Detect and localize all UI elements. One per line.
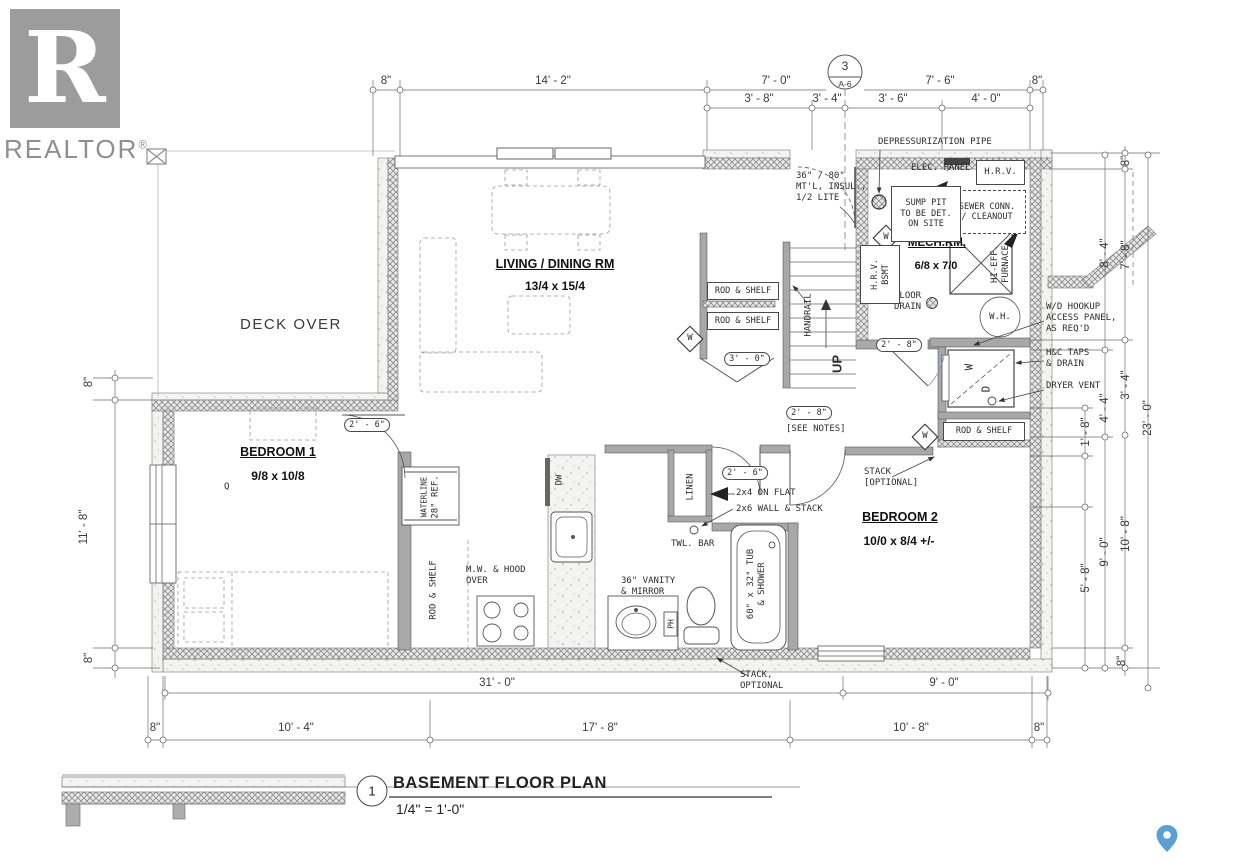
bedroom1-window bbox=[150, 465, 176, 583]
door-tag-mech: 2' - 8" bbox=[876, 338, 922, 352]
tub-shower-label: 60" x 32" TUB& SHOWER bbox=[746, 549, 768, 619]
dim-top-14-2: 14' - 2" bbox=[535, 75, 571, 87]
floor-drain-symbol bbox=[927, 298, 938, 309]
door-tag-bedroom1: 2' - 6" bbox=[344, 418, 390, 432]
dim-left-8in-top: 8" bbox=[83, 377, 95, 387]
dim-bottom-8in-left: 8" bbox=[150, 722, 160, 734]
dim-bottom-31-0: 31' - 0" bbox=[479, 677, 515, 689]
linen-label: LINEN bbox=[686, 473, 697, 500]
dishwasher-label: DW bbox=[555, 475, 566, 486]
window-wall-top bbox=[395, 148, 705, 168]
dim-right-3-4: 3' - 4" bbox=[1120, 370, 1132, 399]
towel-bar-label: TWL. BAR bbox=[671, 539, 714, 550]
dim-top-7-6: 7' - 6" bbox=[925, 75, 954, 87]
dim-top-8in-left: 8" bbox=[381, 75, 391, 87]
room-bedroom1-size: 9/8 x 10/8 bbox=[251, 469, 304, 483]
window-diamond-3-label: W bbox=[922, 431, 927, 442]
dryer-vent-symbol bbox=[988, 397, 996, 405]
dim-left-8in-bottom: 8" bbox=[83, 653, 95, 663]
sump-pit-box: SUMP PITTO BE DET.ON SITE bbox=[891, 186, 961, 242]
dim-right-8in-top: 8" bbox=[1120, 156, 1132, 166]
realtor-logo-r: R bbox=[24, 20, 105, 118]
dining-table bbox=[492, 186, 610, 234]
deck-over-label: DECK OVER bbox=[240, 316, 342, 333]
room-bedroom1-name: BEDROOM 1 bbox=[240, 445, 316, 459]
dim-top-3-6: 3' - 6" bbox=[878, 93, 907, 105]
dryer-vent-label: DRYER VENT bbox=[1046, 381, 1100, 392]
2x4-on-flat-label: 2x4 ON FLAT bbox=[736, 488, 796, 499]
hrv-bsmt-box: H.R.V.BSMT bbox=[860, 245, 900, 304]
rod-shelf-bedroom2: ROD & SHELF bbox=[943, 422, 1025, 441]
microwave-hood-label: M.W. & HOODOVER bbox=[466, 565, 526, 587]
drawing-scale: 1/4" = 1'-0" bbox=[396, 801, 464, 817]
floor-plan-page: R REALTOR® 3 A-6 8" 14' - 2" 7' - 0" 7' … bbox=[0, 0, 1237, 867]
stairs bbox=[790, 248, 856, 388]
section-bubble-sheet: A-6 bbox=[838, 79, 851, 89]
dim-bottom-10-4: 10' - 4" bbox=[278, 722, 314, 734]
rod-shelf-closet-2: ROD & SHELF bbox=[707, 312, 779, 330]
dresser bbox=[250, 408, 316, 440]
hi-eff-furnace-label: HI-EFF.FURNACE bbox=[990, 245, 1012, 283]
elec-panel-label: ELEC. PANEL bbox=[911, 163, 971, 174]
dim-bottom-10-8: 10' - 8" bbox=[893, 722, 929, 734]
sofa bbox=[420, 238, 456, 353]
dim-bottom-9-0: 9' - 0" bbox=[929, 677, 958, 689]
bed bbox=[178, 572, 388, 650]
dim-right-4-4: 4' - 4" bbox=[1099, 393, 1111, 422]
hrv-box: H.R.V. bbox=[976, 160, 1025, 185]
room-living-name: LIVING / DINING RM bbox=[496, 257, 615, 271]
2x6-wall-stack-label: 2x6 WALL & STACK bbox=[736, 504, 823, 515]
dim-right-9-0: 9' - 0" bbox=[1099, 537, 1111, 566]
patio-window-2 bbox=[555, 148, 611, 159]
dim-top-7-0: 7' - 0" bbox=[761, 75, 790, 87]
door-tag-bathroom: 2' - 6" bbox=[722, 466, 768, 480]
bedroom2-window bbox=[818, 646, 884, 661]
entry-door-spec-label: 36" / 80"MT'L, INSUL.,1/2 LITE bbox=[796, 171, 866, 204]
window-diamond-2-label: W bbox=[883, 232, 888, 243]
detail-number: 1 bbox=[368, 784, 375, 799]
see-notes-label: [SEE NOTES] bbox=[786, 424, 846, 435]
room-bedroom2-name: BEDROOM 2 bbox=[862, 510, 938, 524]
stack-optional-bottom-label: STACK,OPTIONAL bbox=[740, 670, 783, 692]
up-arrow bbox=[821, 299, 831, 310]
drawing-title: BASEMENT FLOOR PLAN bbox=[393, 774, 607, 793]
coffee-table bbox=[508, 296, 570, 334]
toilet bbox=[687, 587, 715, 625]
rod-shelf-closet-1: ROD & SHELF bbox=[707, 282, 779, 300]
dim-right-8in-bottom: 8" bbox=[1116, 656, 1128, 666]
dim-top-4-0: 4' - 0" bbox=[971, 93, 1000, 105]
sump-pit bbox=[872, 195, 886, 209]
room-bedroom2-size: 10/0 x 8/4 +/- bbox=[863, 534, 934, 548]
registered-mark: ® bbox=[138, 137, 149, 151]
map-pin-icon[interactable] bbox=[1157, 825, 1178, 852]
stack-pipe bbox=[690, 526, 698, 534]
floor-plan-drawing bbox=[0, 0, 1237, 867]
deck-edge-lines bbox=[158, 151, 395, 396]
dim-right-5-8: 5' - 8" bbox=[1080, 563, 1092, 592]
dim-top-3-4: 3' - 4" bbox=[812, 93, 841, 105]
hc-taps-label: H&C TAPS& DRAIN bbox=[1046, 348, 1089, 370]
patio-window-1 bbox=[497, 148, 553, 159]
queen-bed-label: Q bbox=[224, 482, 229, 493]
dim-right-1-8: 1' - 8" bbox=[1080, 417, 1092, 446]
dim-top-8in-right: 8" bbox=[1032, 75, 1042, 87]
water-heater-label: W.H. bbox=[989, 312, 1011, 323]
up-label: UP bbox=[832, 355, 843, 373]
room-mech-size: 6/8 x 7/0 bbox=[915, 260, 958, 272]
dim-right-8-4: 8' - 4" bbox=[1099, 238, 1111, 267]
waterline-fridge-label: WATERLINE28" REF. bbox=[419, 475, 442, 518]
dim-right-23-0: 23' - 0" bbox=[1142, 400, 1154, 436]
dishwasher-front bbox=[545, 458, 550, 506]
window-diamond-1-label: W bbox=[687, 333, 692, 344]
handrail-label: HANDRAIL bbox=[804, 293, 815, 336]
realtor-logo: R bbox=[10, 9, 120, 128]
section-bubble-number: 3 bbox=[842, 59, 849, 73]
rod-shelf-kitchen: ROD & SHELF bbox=[429, 560, 440, 620]
stack-optional-label: STACK[OPTIONAL] bbox=[864, 467, 918, 489]
realtor-wordmark: REALTOR® bbox=[4, 134, 149, 165]
dim-right-7-8: 7' - 8" bbox=[1120, 240, 1132, 269]
door-tag-bedroom2: 2' - 8" bbox=[786, 406, 832, 420]
dim-right-10-8: 10' - 8" bbox=[1120, 516, 1132, 552]
dim-bottom-17-8: 17' - 8" bbox=[582, 722, 618, 734]
depressurization-pipe-label: DEPRESSURIZATION PIPE bbox=[878, 137, 992, 148]
washer-label: W bbox=[964, 364, 975, 371]
dim-top-3-8: 3' - 8" bbox=[744, 93, 773, 105]
dim-left-11-8: 11' - 8" bbox=[78, 510, 90, 545]
door-tag-closet: 3' - 0" bbox=[724, 352, 770, 366]
wd-hookup-label: W/D HOOKUPACCESS PANEL,AS REQ'D bbox=[1046, 302, 1116, 335]
room-living-size: 13/4 x 15/4 bbox=[525, 279, 585, 293]
vanity-label: 36" VANITY& MIRROR bbox=[621, 576, 675, 598]
dim-bottom-8in-right: 8" bbox=[1034, 722, 1044, 734]
ph-label: PH bbox=[666, 619, 677, 629]
box-x-icon bbox=[147, 149, 166, 164]
bedroom2-door bbox=[790, 450, 845, 505]
dryer-label: D bbox=[981, 386, 992, 393]
